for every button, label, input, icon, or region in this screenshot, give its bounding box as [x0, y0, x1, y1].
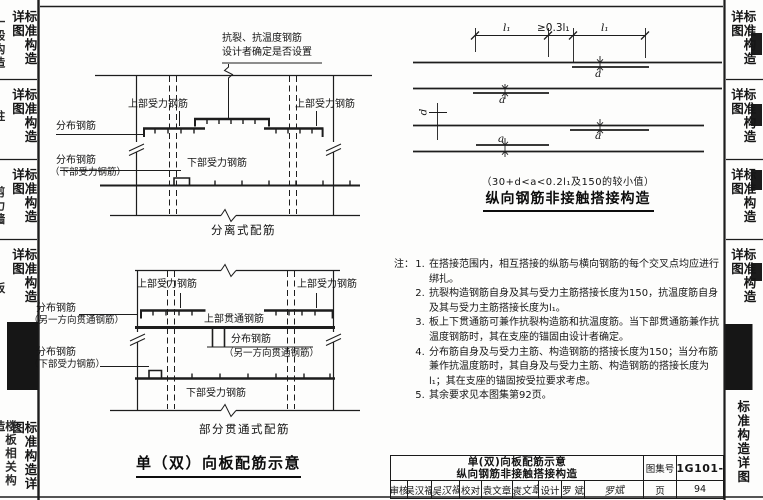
bottom-bar-label: 下部受力钢筋: [186, 388, 246, 400]
check-signature-cell: 袁文章: [513, 480, 539, 498]
check-signature: 袁文章: [513, 481, 539, 498]
sidebar-right-tab: 标准构造详图: [727, 400, 757, 497]
titleblock-title-line1: 单(双)向板配筋示意: [468, 456, 567, 468]
chapter-fragment: 板: [0, 282, 5, 296]
check-name-cell: 袁文章: [482, 480, 513, 498]
design-label-cell: 设计: [539, 480, 562, 498]
distribution-bar-label: 分布钢筋: [56, 121, 96, 133]
tab-label: 标准构造详图: [11, 88, 36, 152]
top-bar-label-left: 上部受力钢筋: [128, 99, 188, 111]
page-number-cell: 94: [677, 480, 723, 498]
frame-lines: [0, 0, 763, 500]
top-through-bar-label: 上部贯通钢筋: [204, 314, 264, 326]
tab-label: 标准构造详图: [11, 168, 36, 232]
tab-label: 标准构造详图: [730, 248, 755, 312]
lap-title-wrap: 纵向钢筋非接触搭接构造: [413, 188, 723, 212]
chapter-fragment: 楼板相关构造: [0, 420, 16, 500]
top-bar-label-right: 上部受力钢筋: [297, 279, 357, 291]
distribution-lower-label: 分布钢筋: [36, 347, 76, 359]
titleblock-title-cell: 单(双)向板配筋示意 纵向钢筋非接触搭接构造: [391, 456, 644, 480]
distribution-through-sublabel: （另一方向贯通钢筋）: [29, 316, 124, 327]
gap-a-label: a: [595, 68, 601, 80]
dim-l1-right: l₁: [601, 22, 609, 34]
design-name-cell: 罗 斌: [562, 480, 585, 498]
design-signature-cell: 罗斌: [585, 480, 644, 498]
review-signature: 吴汉福: [432, 481, 460, 498]
atlas-number-cell: 11G101-1: [677, 456, 723, 480]
sidebar-left-tab: 标准构造详图: [8, 88, 38, 152]
left-diagram-title: 单（双）向板配筋示意: [136, 452, 301, 478]
lap-formula-wrap: （30+d<a<0.2l₁及150的较小值）: [413, 170, 723, 189]
note-item: 在搭接范围内，相互搭接的纵筋与横向钢筋的每个交叉点均应进行绑扎。: [428, 258, 726, 287]
notes-list: 在搭接范围内，相互搭接的纵筋与横向钢筋的每个交叉点均应进行绑扎。 抗裂构造钢筋自…: [414, 258, 726, 404]
tab-label: 标准构造详图: [11, 10, 36, 74]
tab-label: 标准构造详图: [730, 10, 755, 74]
diagram-separated-caption: 分离式配筋: [211, 222, 276, 238]
lap-diagram-title: 纵向钢筋非接触搭接构造: [483, 188, 654, 212]
crack-note-line2: 设计者确定是否设置: [222, 47, 312, 59]
diagram-lap-lines: [413, 28, 722, 157]
note-item: 抗裂构造钢筋自身及其与受力主筋搭接长度为150，抗温度筋自身及其与受力主筋搭接长…: [428, 287, 726, 316]
sidebar-right-tab: 标准构造详图: [727, 10, 757, 74]
gap-a-label: a: [498, 133, 504, 145]
titleblock-title-line2: 纵向钢筋非接触搭接构造: [457, 468, 578, 480]
distribution-bar-label: 分布钢筋: [56, 155, 96, 167]
distribution-bar-sublabel: （下部受力钢筋）: [50, 168, 126, 179]
bottom-bar-label: 下部受力钢筋: [187, 158, 247, 170]
notes-prefix: 注：: [394, 258, 414, 404]
tab-label: 标准构造详图: [11, 248, 36, 312]
top-bar-label-left: 上部受力钢筋: [137, 279, 197, 291]
diagram-linework: [0, 0, 763, 500]
tab-label: 标准构造详图: [736, 400, 749, 497]
title-block: 单(双)向板配筋示意 纵向钢筋非接触搭接构造 图集号 11G101-1 审核 吴…: [390, 455, 724, 499]
tab-label: 标准构造详图: [730, 88, 755, 152]
dim-mid: ≥0.3l₁: [537, 22, 570, 34]
design-signature: 罗斌: [603, 481, 624, 498]
right-chapter-tab-block: [726, 324, 753, 390]
distribution-through-label: 分布钢筋: [36, 303, 76, 315]
distribution-mid-sublabel: （另一方向贯通钢筋）: [224, 349, 319, 360]
crack-note-line1: 抗裂、抗温度钢筋: [222, 33, 302, 45]
gap-a-label: a: [499, 94, 505, 106]
distribution-lower-sublabel: （下部受力钢筋）: [29, 360, 105, 371]
chapter-fragment: 柱: [0, 110, 5, 124]
review-label-cell: 审核: [391, 480, 408, 498]
sidebar-left-tab: 标准构造详图: [8, 168, 38, 232]
note-item: 分布筋自身及与受力主筋、构造钢筋的搭接长度为150；当分布筋兼作抗温度筋时，其自…: [428, 346, 726, 390]
sidebar-right-tab: 标准构造详图: [727, 168, 757, 232]
distribution-mid-label: 分布钢筋: [231, 334, 271, 346]
sidebar-left-tab: 标准构造详图: [8, 10, 38, 74]
diagram-separated-lines: [56, 63, 372, 222]
gap-a-label: a: [595, 130, 601, 142]
note-item: 其余要求见本图集第92页。: [428, 389, 726, 404]
dim-l1-left: l₁: [503, 22, 511, 34]
check-label-cell: 校对: [460, 480, 482, 498]
sidebar-left-tab: 标准构造详图: [8, 248, 38, 312]
notes-block: 注： 在搭接范围内，相互搭接的纵筋与横向钢筋的每个交叉点均应进行绑扎。 抗裂构造…: [394, 258, 726, 404]
page-label-cell: 页: [644, 480, 677, 498]
top-bar-label-right: 上部受力钢筋: [295, 99, 355, 111]
chapter-fragment: 一般构造: [0, 16, 5, 70]
diagram-partial-caption: 部分贯通式配筋: [199, 421, 290, 437]
atlas-label-cell: 图集号: [644, 456, 677, 480]
review-signature-cell: 吴汉福: [432, 480, 460, 498]
chapter-fragment: 剪力墙: [0, 186, 5, 227]
drawing-sheet: 标准构造详图 标准构造详图 标准构造详图 标准构造详图 标准构造详图 一般构造 …: [0, 0, 763, 500]
note-item: 板上下贯通筋可兼作抗裂构造筋和抗温度筋。当下部贯通筋兼作抗温度钢筋时，其在支座的…: [428, 316, 726, 345]
review-name-cell: 吴汉福: [408, 480, 432, 498]
left-chapter-tab-block: [7, 322, 38, 390]
sidebar-right-tab: 标准构造详图: [727, 88, 757, 152]
sidebar-right-tab: 标准构造详图: [727, 248, 757, 312]
bar-diameter-d-label: d: [417, 109, 429, 116]
tab-label: 标准构造详图: [730, 168, 755, 232]
lap-formula: （30+d<a<0.2l₁及150的较小值）: [481, 177, 654, 188]
